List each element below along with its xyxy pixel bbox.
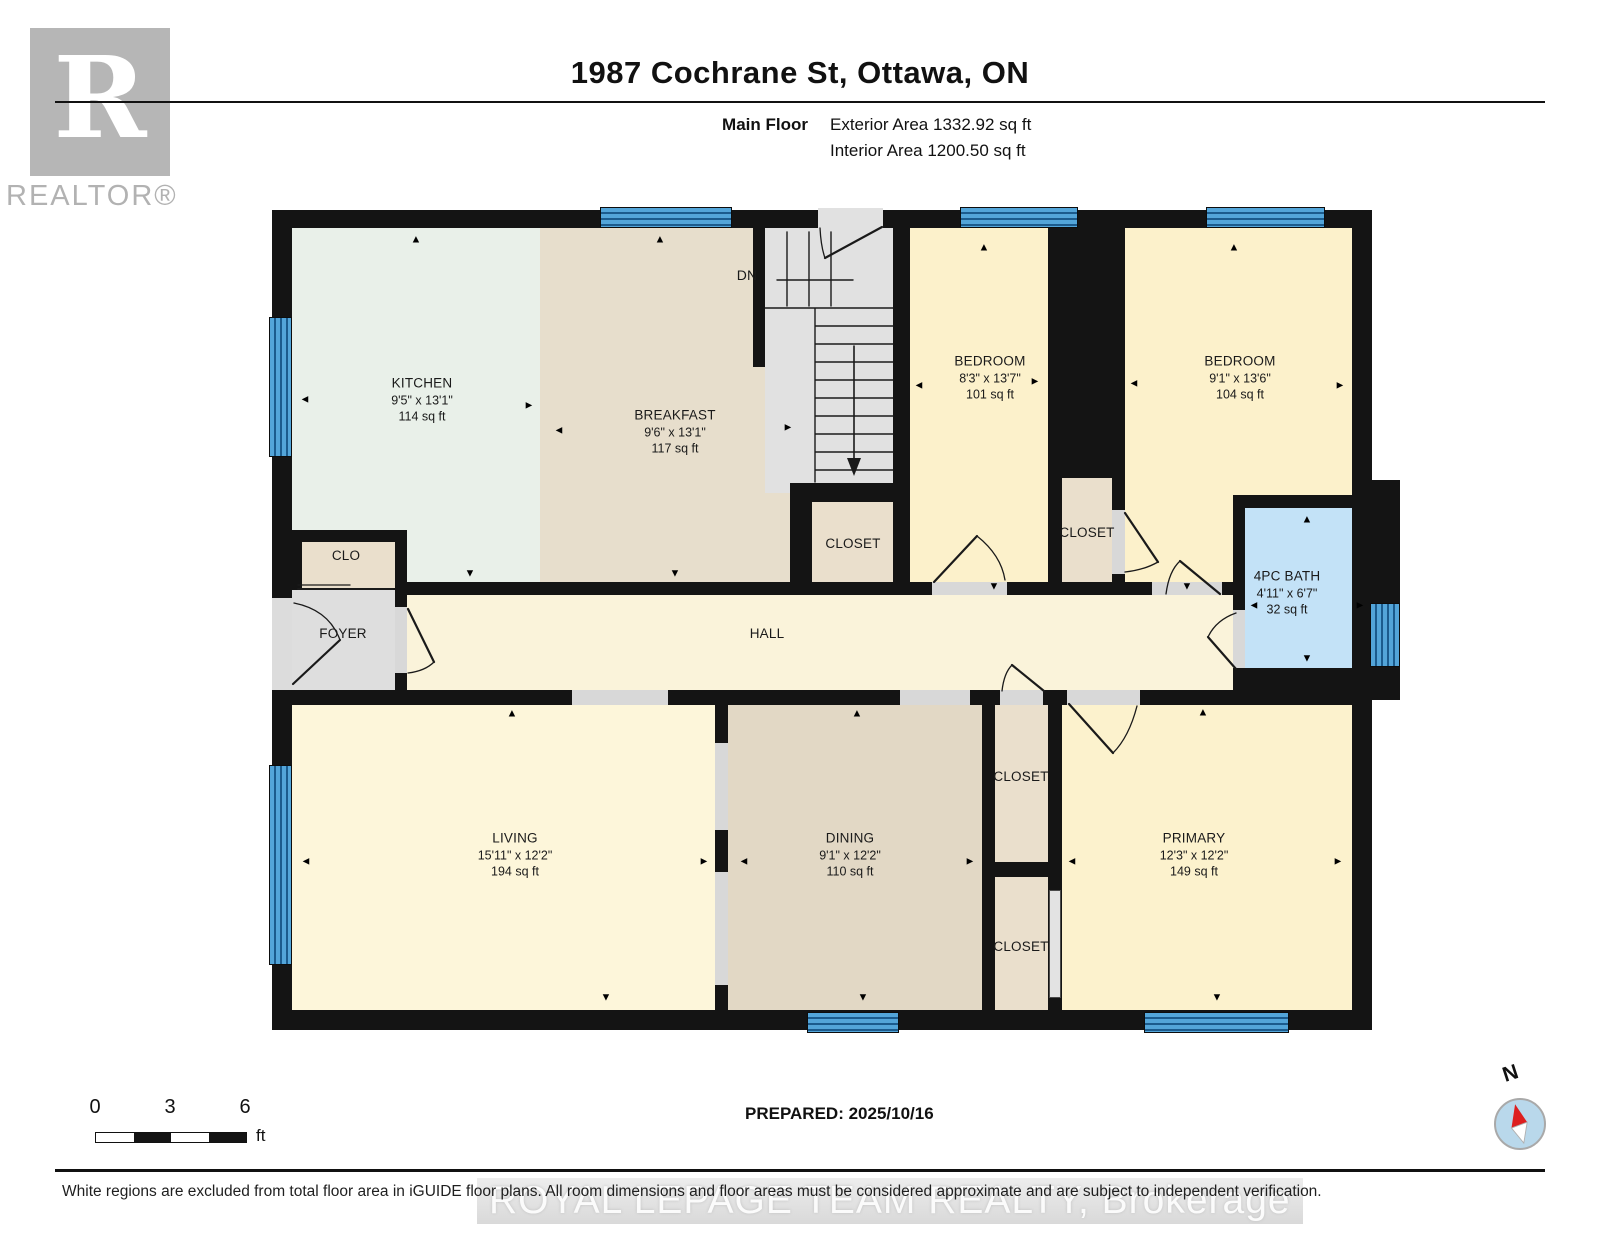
door-leaf-primary	[1069, 704, 1113, 753]
door-leaf-foyer-ext	[293, 640, 340, 684]
room-label-bedroom2: BEDROOM 9'1" x 13'6" 104 sq ft	[1204, 353, 1275, 404]
room-label-bedroom1: BEDROOM 8'3" x 13'7" 101 sq ft	[954, 353, 1025, 404]
room-label-closet-top: CLOSET	[993, 768, 1048, 786]
scale-bar-segment	[96, 1133, 134, 1142]
door-leaf-bedroom1	[934, 536, 977, 582]
scale-bar-segment	[134, 1133, 172, 1142]
room-label-kitchen: KITCHEN 9'5" x 13'1" 114 sq ft	[391, 375, 453, 426]
door-arc-entry	[820, 228, 825, 258]
footer-divider	[55, 1169, 1545, 1172]
room-label-clo: CLO	[332, 547, 360, 565]
door-arc-primary	[1113, 706, 1137, 753]
door-leaf-closet-mid	[1125, 513, 1158, 562]
door-arc-closet-top	[1002, 665, 1012, 691]
scale-bar	[95, 1132, 247, 1143]
stair-down-arrowhead	[847, 458, 861, 476]
page-title: 1987 Cochrane St, Ottawa, ON	[0, 55, 1600, 91]
room-label-foyer: FOYER	[319, 625, 367, 643]
stairs-dn-label: DN	[737, 266, 758, 284]
page: R REALTOR® 1987 Cochrane St, Ottawa, ON …	[0, 0, 1600, 1243]
door-leaf-bath	[1208, 637, 1236, 669]
room-label-primary: PRIMARY 12'3" x 12'2" 149 sq ft	[1160, 830, 1229, 881]
door-arc-bedroom2	[1166, 561, 1180, 594]
doors-and-stairs-overlay	[272, 210, 1412, 1030]
room-label-hall: HALL	[750, 625, 785, 643]
realtor-wordmark: REALTOR®	[6, 180, 178, 213]
floor-label: Main Floor	[600, 115, 808, 135]
disclaimer-text: White regions are excluded from total fl…	[62, 1183, 1322, 1201]
scale-bar-segment	[171, 1133, 209, 1142]
room-label-closet-mid: CLOSET	[1059, 524, 1114, 542]
scale-tick-6: 6	[239, 1096, 250, 1119]
stair-treads	[765, 232, 893, 482]
room-label-breakfast: BREAKFAST 9'6" x 13'1" 117 sq ft	[634, 407, 715, 458]
scale-tick-0: 0	[89, 1096, 100, 1119]
scale-unit: ft	[256, 1126, 265, 1146]
door-arc-foyer-hall	[408, 662, 434, 673]
door-arc-bedroom1	[977, 536, 1005, 580]
prepared-date: PREPARED: 2025/10/16	[745, 1104, 934, 1124]
room-label-closet-stairs: CLOSET	[825, 535, 880, 553]
door-leaf-entry	[825, 227, 882, 258]
header-divider	[55, 101, 1545, 103]
door-leaf-closet-top	[1012, 665, 1044, 691]
compass-north-label: N	[1500, 1060, 1522, 1088]
door-leaf-foyer-hall	[408, 609, 434, 662]
exterior-area: Exterior Area 1332.92 sq ft	[830, 115, 1031, 135]
realtor-logo-letter: R	[53, 43, 146, 155]
door-arc-bath	[1208, 613, 1236, 637]
door-arc-closet-mid	[1125, 562, 1158, 572]
compass-needle-icon	[1496, 1100, 1544, 1148]
scale-bar-segment	[209, 1133, 247, 1142]
scale-tick-3: 3	[164, 1096, 175, 1119]
door-leaf-bedroom2	[1180, 561, 1220, 594]
room-label-closet-bottom: CLOSET	[993, 938, 1048, 956]
interior-area: Interior Area 1200.50 sq ft	[830, 141, 1026, 161]
room-label-bath: 4PC BATH 4'11" x 6'7" 32 sq ft	[1254, 568, 1321, 619]
room-label-living: LIVING 15'11" x 12'2" 194 sq ft	[478, 830, 553, 881]
room-label-dining: DINING 9'1" x 12'2" 110 sq ft	[819, 830, 881, 881]
compass	[1494, 1098, 1546, 1150]
floor-plan: KITCHEN 9'5" x 13'1" 114 sq ft BREAKFAST…	[272, 210, 1372, 1030]
